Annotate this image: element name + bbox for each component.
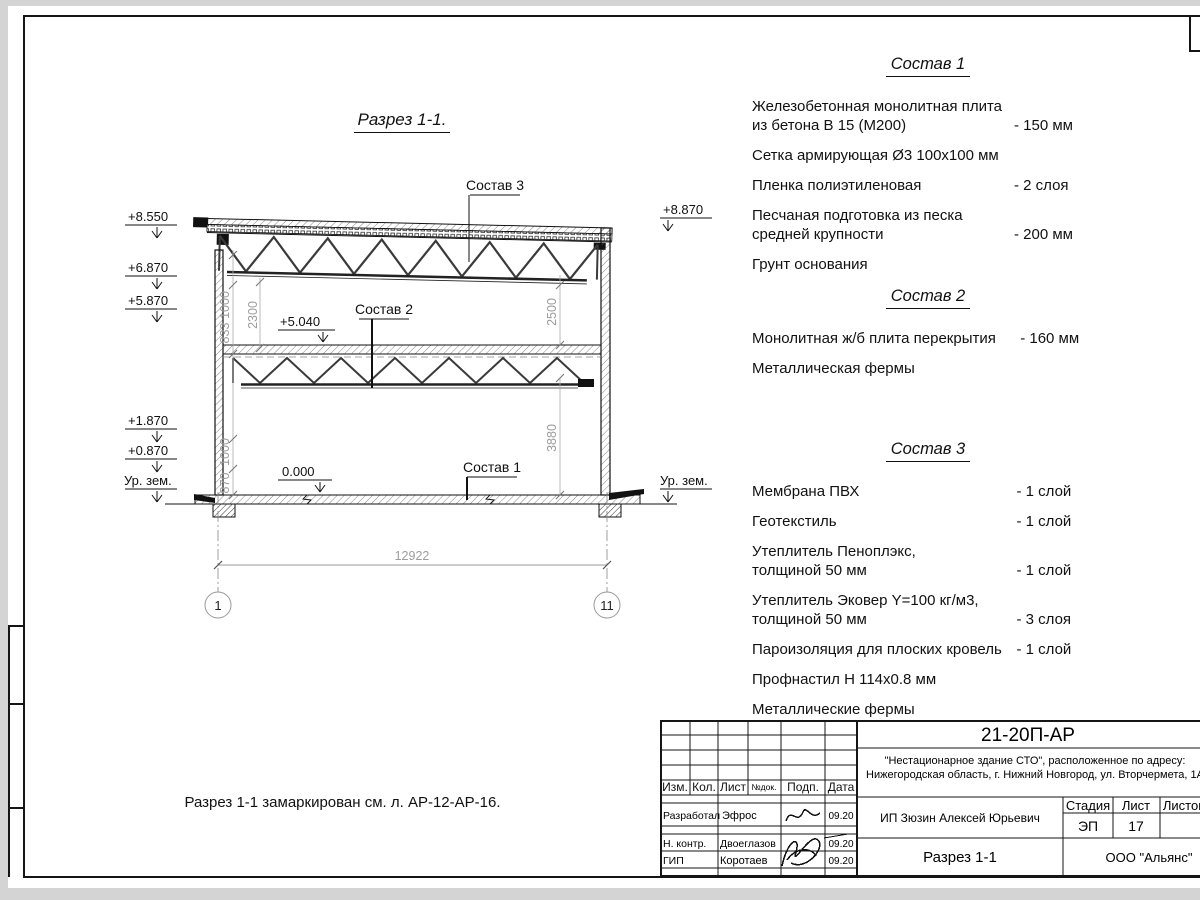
- floor-bearing-right: [578, 379, 594, 387]
- elev-0870: +0.870: [128, 443, 168, 458]
- list-item: Утеплитель Эковер Y=100 кг/м3, толщиной …: [752, 591, 1104, 629]
- sheet-label: Лист: [1122, 798, 1150, 813]
- floor-slab: [223, 345, 601, 354]
- title-block: Изм. Кол. Лист №док. Подп. Дата Разработ…: [660, 720, 1200, 878]
- composition-3: Состав 3 Мембрана ПВХ- 1 слой Геотекстил…: [752, 440, 1104, 730]
- composition-1: Состав 1 Железобетонная монолитная плита…: [752, 55, 1104, 285]
- marking-note: Разрез 1-1 замаркирован см. л. АР-12-АР-…: [170, 794, 515, 811]
- sheet-title: Разрез 1-1: [923, 849, 997, 866]
- dim-1000a: 1000: [218, 291, 232, 319]
- dim-2300: 2300: [246, 301, 260, 329]
- list-item: Металлические фермы: [752, 700, 1104, 719]
- elev-0000: 0.000: [282, 464, 315, 479]
- frame-left: [23, 15, 25, 878]
- composition-1-title: Состав 1: [752, 55, 1104, 77]
- list-item: Сетка армирующая Ø3 100х100 мм: [752, 146, 1104, 165]
- signature-2: [782, 839, 820, 866]
- label-sostav-1: Состав 1: [463, 459, 521, 475]
- row2-role: Н. контр.: [663, 838, 706, 850]
- list-item: Монолитная ж/б плита перекрытия- 160 мм: [752, 329, 1104, 348]
- list-item: Геотекстиль- 1 слой: [752, 512, 1104, 531]
- foundation-left: [213, 504, 235, 517]
- drawing-sheet: Разрез 1-1.: [0, 0, 1200, 900]
- floor-truss: [233, 358, 584, 383]
- col-ndok: №док.: [752, 782, 777, 792]
- left-strip-div3: [8, 807, 25, 809]
- composition-2: Состав 2 Монолитная ж/б плита перекрытия…: [752, 287, 1104, 389]
- dim-2500: 2500: [545, 298, 559, 326]
- ground-slab: [195, 495, 640, 504]
- row1-date: 09.20: [828, 811, 853, 822]
- dim-total: 12922: [395, 549, 430, 563]
- dim-chain-left: [229, 250, 264, 499]
- dim-3880: 3880: [545, 424, 559, 452]
- roof-left-cap: [193, 217, 208, 227]
- list-item: Пароизоляция для плоских кровель- 1 слой: [752, 640, 1104, 659]
- composition-3-title: Состав 3: [752, 440, 1104, 462]
- client: ИП Зюзин Алексей Юрьевич: [880, 811, 1040, 825]
- frame-top: [23, 15, 1200, 17]
- project-line2: Нижегородская область, г. Нижний Новгоро…: [866, 769, 1200, 781]
- wall-right: [601, 228, 610, 495]
- project-line1: "Нестационарное здание СТО", расположенн…: [885, 755, 1186, 767]
- dim-833: 833: [218, 323, 232, 344]
- col-kol: Кол.: [692, 780, 716, 794]
- signature-1: [786, 810, 820, 821]
- sheets-label: Листов: [1163, 798, 1200, 813]
- left-strip-div1: [8, 625, 25, 627]
- list-item: Утеплитель Пеноплэкс, толщиной 50 мм- 1 …: [752, 542, 1104, 580]
- list-item: Металлическая фермы: [752, 359, 1104, 378]
- copy-number-box: [1189, 15, 1200, 52]
- label-sostav-2: Состав 2: [355, 301, 413, 317]
- label-sostav-3: Состав 3: [466, 177, 524, 193]
- elev-5040: +5.040: [280, 314, 320, 329]
- elev-1870: +1.870: [128, 413, 168, 428]
- col-podp: Подп.: [787, 780, 819, 794]
- col-data: Дата: [828, 780, 855, 794]
- list-item: Железобетонная монолитная плита из бетон…: [752, 97, 1104, 135]
- row3-date: 09.20: [828, 856, 853, 867]
- axis-number-11: 11: [600, 598, 614, 613]
- signature-stroke: [824, 834, 848, 838]
- elev-8870: +8.870: [663, 202, 703, 217]
- section-drawing: +8.550 +6.870 +5.870 +1.870 +0.870 Ур. з…: [120, 90, 720, 640]
- elev-ground-left: Ур. зем.: [124, 473, 172, 488]
- doc-number: 21-20П-АР: [981, 725, 1075, 746]
- list-item: Профнастил Н 114х0.8 мм: [752, 670, 1104, 689]
- roof-assembly: [192, 217, 612, 284]
- stage-value: ЭП: [1078, 818, 1098, 834]
- dim-1000b: 1000: [218, 438, 232, 466]
- row3-name: Коротаев: [720, 855, 768, 867]
- axis-number-1: 1: [214, 598, 221, 613]
- elev-8550: +8.550: [128, 209, 168, 224]
- row2-name: Двоеглазов: [720, 838, 776, 850]
- company: ООО "Альянс": [1106, 850, 1193, 865]
- list-item: Грунт основания: [752, 255, 1104, 274]
- row1-role: Разработал: [663, 810, 720, 822]
- col-izm: Изм.: [662, 780, 688, 794]
- left-strip-div2: [8, 703, 25, 705]
- list-item: Песчаная подготовка из песка средней кру…: [752, 206, 1104, 244]
- elev-6870: +6.870: [128, 260, 168, 275]
- left-strip-line: [8, 625, 10, 877]
- col-list: Лист: [720, 780, 747, 794]
- list-item: Пленка полиэтиленовая- 2 слоя: [752, 176, 1104, 195]
- sheet-value: 17: [1128, 818, 1144, 834]
- row2-date: 09.20: [828, 839, 853, 850]
- list-item: Мембрана ПВХ- 1 слой: [752, 482, 1104, 501]
- composition-2-title: Состав 2: [752, 287, 1104, 309]
- stage-label: Стадия: [1066, 798, 1110, 813]
- elev-5870: +5.870: [128, 293, 168, 308]
- elevation-marks-right: [660, 218, 712, 502]
- row3-role: ГИП: [663, 855, 684, 867]
- row1-name: Эфрос: [722, 810, 757, 822]
- foundation-right: [599, 504, 621, 517]
- elev-ground-right: Ур. зем.: [660, 473, 708, 488]
- dim-870: 870: [218, 473, 232, 494]
